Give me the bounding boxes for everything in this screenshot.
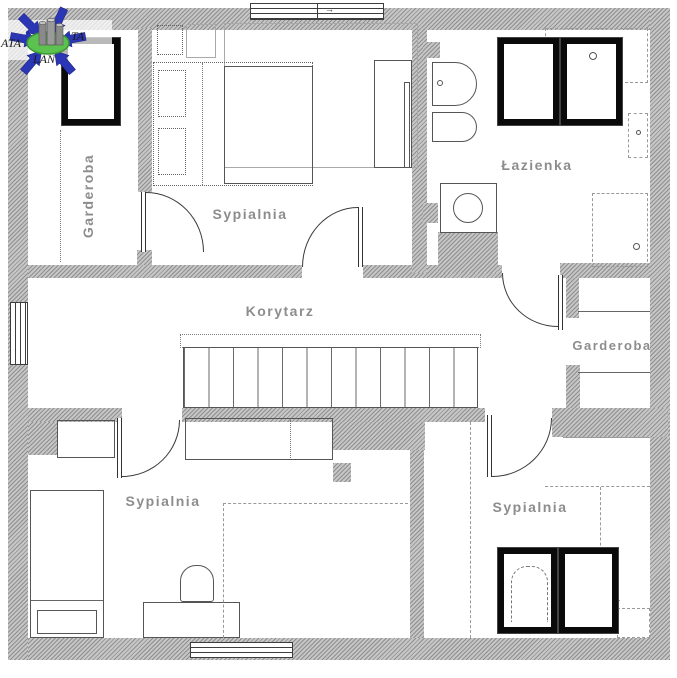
stairs-handrail <box>180 334 481 348</box>
window-bottom-wall <box>190 642 293 658</box>
wall-bathroom-stub-top <box>423 42 440 58</box>
toilet-flush-icon <box>437 80 443 86</box>
wall-bottom-right-section <box>552 408 668 437</box>
attic-line-h1 <box>545 486 650 487</box>
shower-tray <box>592 193 648 267</box>
door-arc-bedroom-bottom-right <box>492 418 552 477</box>
bed-footer-line <box>31 600 103 601</box>
room-label-garderoba-right: Garderoba <box>552 338 672 353</box>
nightstand-1 <box>158 70 186 117</box>
dresser-bottom-left-bedroom <box>57 420 115 458</box>
garderoba-right-shelf-bottom <box>578 372 650 373</box>
wall-garderoba-right-stub-top <box>566 278 579 318</box>
door-arc-bathroom <box>502 273 558 327</box>
roof-window-handle-icon <box>589 52 597 60</box>
door-arc-bedroom-top <box>302 207 358 267</box>
stairs <box>183 347 478 408</box>
desk <box>143 602 240 638</box>
knee-wall-line-right-room <box>470 422 471 638</box>
room-label-korytarz: Korytarz <box>220 303 340 319</box>
room-label-sypialnia-top: Sypialnia <box>190 206 310 222</box>
bed-duvet <box>224 66 313 184</box>
wall-mid-block <box>333 422 425 450</box>
bed-pillow <box>37 610 97 634</box>
watermark-text-bottom: LAN <box>32 52 56 66</box>
wardrobe-divider-line <box>290 420 291 458</box>
watermark-text-right: TA <box>71 29 85 43</box>
wall-right <box>650 8 670 660</box>
door-arc-garderoba-top-left <box>146 192 204 252</box>
garderoba-closet-line <box>60 130 61 262</box>
roof-window-bathroom-left <box>498 38 559 125</box>
wardrobe-bottom-left-bedroom <box>185 418 333 460</box>
wall-corridor-top-left <box>28 265 302 278</box>
wall-stub-garderoba-door <box>137 250 152 266</box>
dashed-cabinet-bottom-right <box>617 608 650 638</box>
chimney-block <box>333 463 351 482</box>
window-left-wall <box>10 302 28 365</box>
window-top-arrow-icon: → <box>325 4 339 14</box>
wall-bottom <box>8 638 670 660</box>
wall-sw-corner-block <box>28 422 57 455</box>
room-label-lazienka: Łazienka <box>477 157 597 173</box>
door-leaf-bathroom <box>558 275 563 330</box>
window-top-divider <box>317 3 318 20</box>
cabinet-top-bedroom-1 <box>157 25 183 55</box>
wall-garderoba-bedroom <box>138 28 152 192</box>
floor-plan: → <box>0 0 677 678</box>
bed-headboard-line <box>202 63 203 185</box>
chair <box>180 565 214 602</box>
chair-outline-in-window <box>511 566 548 622</box>
knee-wall-line-vertical <box>223 503 224 638</box>
nightstand-2 <box>158 128 186 175</box>
door-leaf-bedroom-top <box>358 207 363 267</box>
watermark-text-left: ATA <box>0 36 22 50</box>
cabinet-knob-icon <box>636 130 641 135</box>
bidet <box>432 112 477 142</box>
watermark-logo: ATA TA LAN <box>0 6 125 78</box>
wall-bedroom-divider <box>410 450 424 638</box>
garderoba-right-shelf-top <box>578 311 650 312</box>
wardrobe-door-strip <box>404 82 410 168</box>
wall-bathroom-stub-mid <box>423 203 438 223</box>
knee-wall-line-horizontal <box>223 503 408 504</box>
bathroom-cabinet-right <box>628 113 648 158</box>
room-label-sypialnia-bottom-right: Sypialnia <box>470 499 590 515</box>
wardrobe-line-bottom-right <box>563 437 650 438</box>
shower-drain-icon <box>633 243 640 250</box>
cabinet-top-bedroom-2 <box>186 24 216 58</box>
room-label-sypialnia-bottom-left: Sypialnia <box>103 493 223 509</box>
roof-window-bedroom-right <box>559 548 618 633</box>
door-arc-bedroom-bottom-left <box>122 420 180 477</box>
room-label-garderoba-top-left: Garderoba <box>80 138 96 254</box>
wall-bathroom-sw-block <box>438 232 498 273</box>
washing-machine-drum-icon <box>453 193 483 223</box>
